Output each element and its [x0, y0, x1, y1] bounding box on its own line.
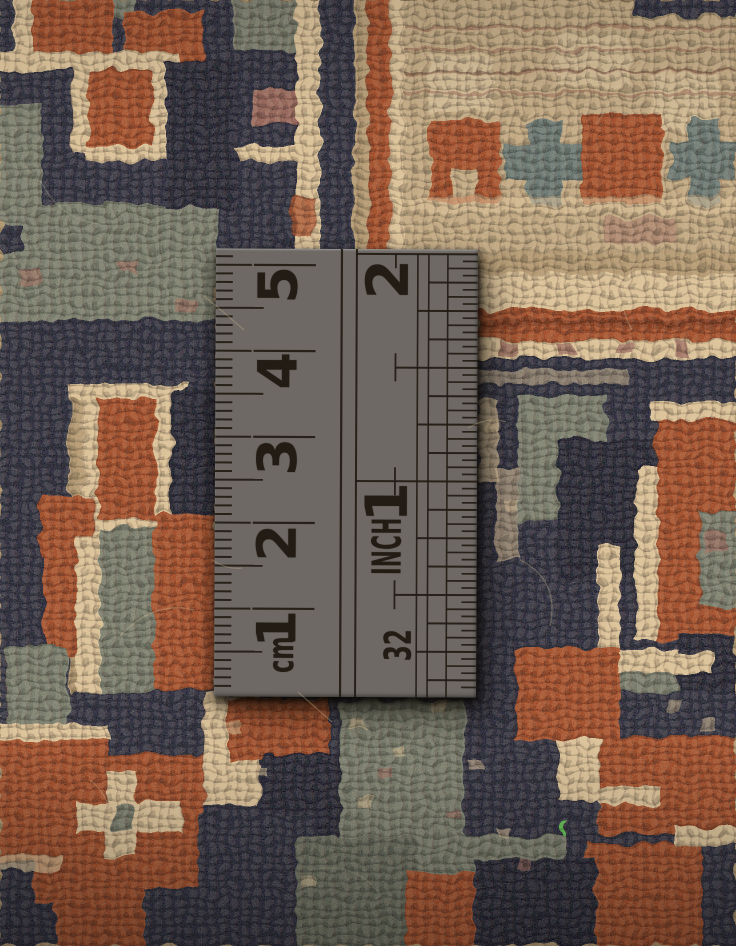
ruler-cm-number-3: 3 [251, 438, 305, 476]
ruler-cm-unit-label: cm [264, 636, 300, 673]
ruler-inch-fraction-label: 32 [380, 629, 417, 661]
ruler-cm-number-5: 5 [252, 266, 306, 304]
photo-canvas: 5 4 3 2 1 cm 2 1 INCH 32 [0, 0, 736, 946]
ruler-cm-number-4: 4 [251, 352, 305, 390]
ruler-inch-unit-label: INCH [368, 517, 408, 575]
steel-ruler: 5 4 3 2 1 cm 2 1 INCH 32 [214, 248, 478, 697]
ruler-inch-number-2: 2 [359, 259, 417, 300]
ruler-cm-number-2: 2 [251, 524, 305, 562]
